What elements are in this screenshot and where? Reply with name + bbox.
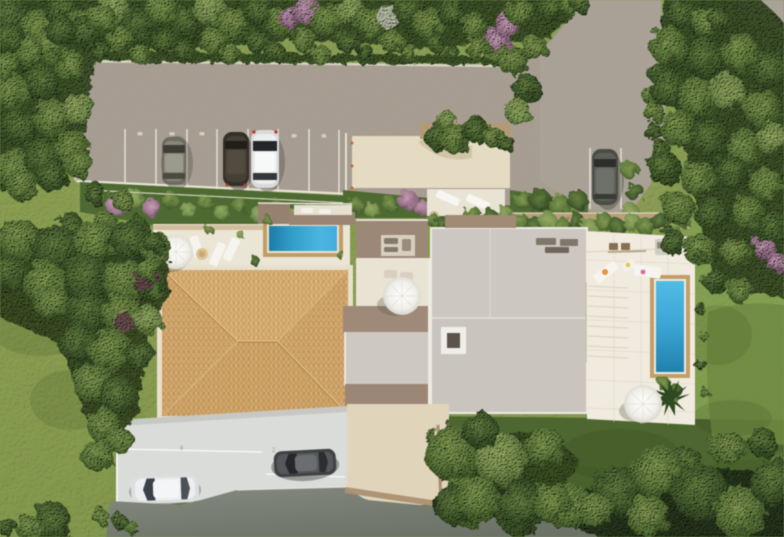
svg-text:10: 10 xyxy=(292,133,297,138)
svg-text:03: 03 xyxy=(200,131,205,136)
svg-text:05: 05 xyxy=(138,131,143,136)
svg-text:04: 04 xyxy=(170,131,175,136)
